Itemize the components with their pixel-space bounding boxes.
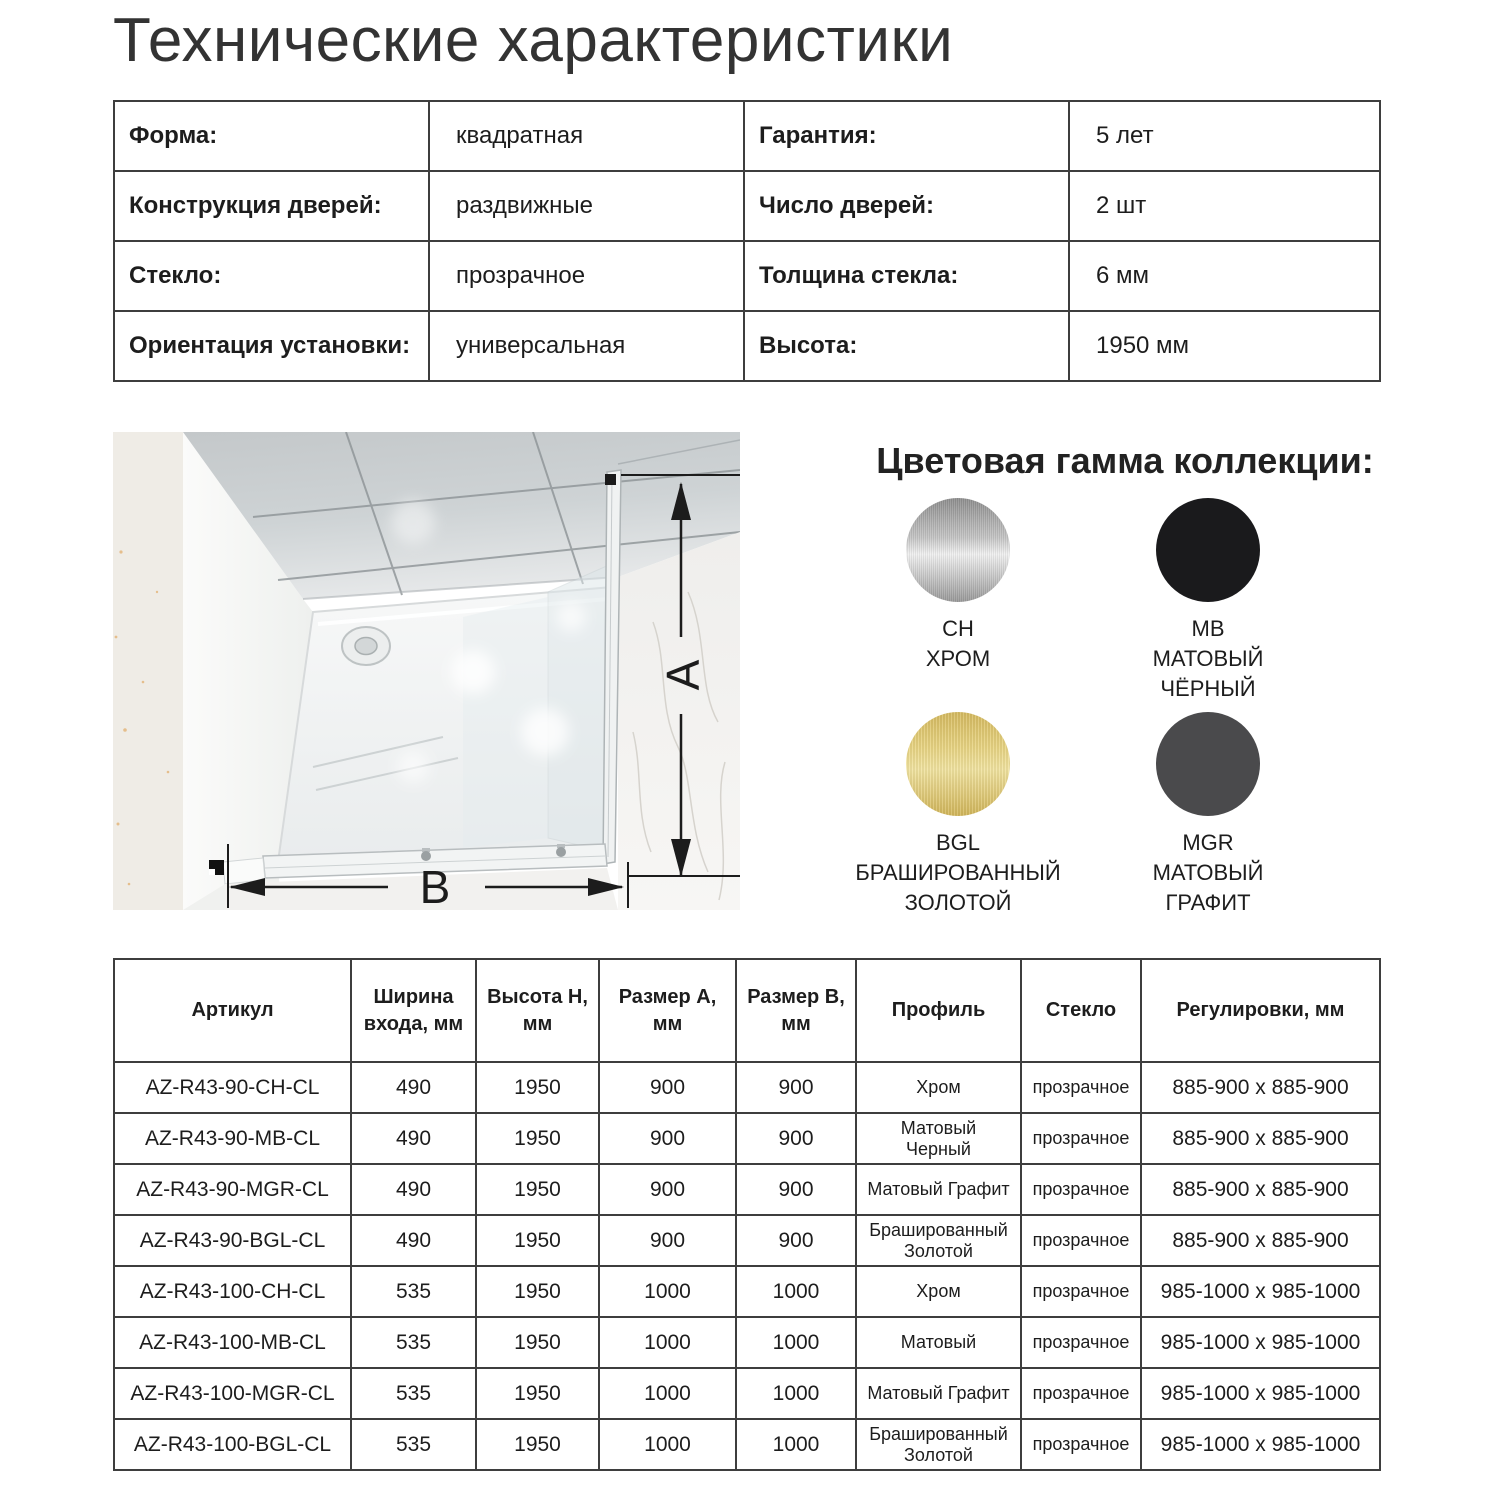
table-row: AZ-R43-90-BGL-CL 490 1950 900 900 Брашир… xyxy=(114,1215,1380,1266)
table-row: AZ-R43-90-CH-CL 490 1950 900 900 Хром пр… xyxy=(114,1062,1380,1113)
table-cell: 900 xyxy=(736,1113,856,1164)
table-cell: 490 xyxy=(351,1113,476,1164)
table-cell: AZ-R43-100-CH-CL xyxy=(114,1266,351,1317)
wall-bracket-top xyxy=(605,474,616,485)
table-cell: AZ-R43-90-CH-CL xyxy=(114,1062,351,1113)
page-title: Технические характеристики xyxy=(113,8,953,73)
spec-label: Форма: xyxy=(114,101,429,171)
table-cell: 535 xyxy=(351,1317,476,1368)
table-cell: 985-1000 x 985-1000 xyxy=(1141,1368,1380,1419)
table-cell: 1000 xyxy=(599,1266,736,1317)
swatch-chrome: CH ХРОМ xyxy=(906,498,1010,712)
table-cell: 1000 xyxy=(599,1368,736,1419)
table-cell: 1000 xyxy=(736,1317,856,1368)
table-cell: 900 xyxy=(736,1062,856,1113)
table-row: AZ-R43-100-MB-CL 535 1950 1000 1000 Мато… xyxy=(114,1317,1380,1368)
spec-label: Ориентация установки: xyxy=(114,311,429,381)
swatch-code: MGR xyxy=(1182,828,1233,858)
table-cell: 1000 xyxy=(599,1317,736,1368)
table-cell: 985-1000 x 985-1000 xyxy=(1141,1317,1380,1368)
spec-value: квадратная xyxy=(429,101,744,171)
table-cell: AZ-R43-100-BGL-CL xyxy=(114,1419,351,1470)
table-cell: AZ-R43-90-MB-CL xyxy=(114,1113,351,1164)
swatch-name: МАТОВЫЙ ЧЁРНЫЙ xyxy=(1153,644,1264,704)
table-cell: Матовый Черный xyxy=(856,1113,1021,1164)
table-cell: AZ-R43-100-MB-CL xyxy=(114,1317,351,1368)
table-row: AZ-R43-100-MGR-CL 535 1950 1000 1000 Мат… xyxy=(114,1368,1380,1419)
swatch-brushed-gold: BGL БРАШИРОВАННЫЙ ЗОЛОТОЙ xyxy=(855,712,1060,918)
table-cell: 885-900 x 885-900 xyxy=(1141,1062,1380,1113)
spec-value: раздвижные xyxy=(429,171,744,241)
table-cell: 1950 xyxy=(476,1164,599,1215)
left-outer-wall xyxy=(113,432,183,910)
column-header: Стекло xyxy=(1021,959,1141,1062)
table-cell: 535 xyxy=(351,1266,476,1317)
table-cell: 885-900 x 885-900 xyxy=(1141,1164,1380,1215)
spec-label: Стекло: xyxy=(114,241,429,311)
spec-label: Конструкция дверей: xyxy=(114,171,429,241)
spec-value: универсальная xyxy=(429,311,744,381)
table-cell: прозрачное xyxy=(1021,1317,1141,1368)
models-header-row: Артикул Ширина входа, мм Высота H, мм Ра… xyxy=(114,959,1380,1062)
color-gamma-heading: Цветовая гамма коллекции: xyxy=(845,440,1405,482)
table-cell: 1950 xyxy=(476,1317,599,1368)
table-cell: Брашированный Золотой xyxy=(856,1215,1021,1266)
table-cell: прозрачное xyxy=(1021,1266,1141,1317)
spec-value: 1950 мм xyxy=(1069,311,1380,381)
table-cell: 1950 xyxy=(476,1113,599,1164)
column-header: Артикул xyxy=(114,959,351,1062)
spec-label: Высота: xyxy=(744,311,1069,381)
swatch-code: MB xyxy=(1192,614,1225,644)
spec-row: Ориентация установки: универсальная Высо… xyxy=(114,311,1380,381)
spec-value: прозрачное xyxy=(429,241,744,311)
table-cell: 1950 xyxy=(476,1215,599,1266)
matte-black-swatch-icon xyxy=(1156,498,1260,602)
spec-row: Стекло: прозрачное Толщина стекла: 6 мм xyxy=(114,241,1380,311)
table-cell: AZ-R43-100-MGR-CL xyxy=(114,1368,351,1419)
table-cell: 490 xyxy=(351,1164,476,1215)
table-cell: 985-1000 x 985-1000 xyxy=(1141,1266,1380,1317)
color-gamma-grid: CH ХРОМ MB МАТОВЫЙ ЧЁРНЫЙ BGL БРАШИРОВАН… xyxy=(833,498,1333,918)
column-header: Размер B, мм xyxy=(736,959,856,1062)
table-cell: 1000 xyxy=(736,1266,856,1317)
spec-row: Конструкция дверей: раздвижные Число две… xyxy=(114,171,1380,241)
spec-sheet-page: Технические характеристики Форма: квадра… xyxy=(0,0,1500,1500)
table-cell: Матовый Графит xyxy=(856,1368,1021,1419)
table-cell: 1950 xyxy=(476,1368,599,1419)
swatch-name: МАТОВЫЙ ГРАФИТ xyxy=(1153,858,1264,918)
ceiling-light-glow xyxy=(391,500,435,544)
table-cell: прозрачное xyxy=(1021,1062,1141,1113)
swatch-code: CH xyxy=(942,614,974,644)
table-cell: прозрачное xyxy=(1021,1419,1141,1470)
table-cell: 535 xyxy=(351,1368,476,1419)
table-cell: 1950 xyxy=(476,1062,599,1113)
table-cell: Матовый xyxy=(856,1317,1021,1368)
table-cell: 1950 xyxy=(476,1266,599,1317)
table-cell: 885-900 x 885-900 xyxy=(1141,1215,1380,1266)
table-cell: 900 xyxy=(736,1164,856,1215)
column-header: Размер A, мм xyxy=(599,959,736,1062)
swatch-code: BGL xyxy=(936,828,980,858)
table-cell: 1950 xyxy=(476,1419,599,1470)
table-cell: 900 xyxy=(599,1062,736,1113)
spec-label: Толщина стекла: xyxy=(744,241,1069,311)
table-cell: AZ-R43-90-MGR-CL xyxy=(114,1164,351,1215)
table-cell: прозрачное xyxy=(1021,1368,1141,1419)
spec-value: 5 лет xyxy=(1069,101,1380,171)
spec-row: Форма: квадратная Гарантия: 5 лет xyxy=(114,101,1380,171)
table-cell: Матовый Графит xyxy=(856,1164,1021,1215)
table-cell: 900 xyxy=(736,1215,856,1266)
table-cell: Хром xyxy=(856,1266,1021,1317)
table-cell: AZ-R43-90-BGL-CL xyxy=(114,1215,351,1266)
swatch-matte-graphite: MGR МАТОВЫЙ ГРАФИТ xyxy=(1153,712,1264,918)
table-row: AZ-R43-90-MB-CL 490 1950 900 900 Матовый… xyxy=(114,1113,1380,1164)
spec-value: 6 мм xyxy=(1069,241,1380,311)
table-cell: 900 xyxy=(599,1113,736,1164)
table-cell: Брашированный Золотой xyxy=(856,1419,1021,1470)
spec-label: Число дверей: xyxy=(744,171,1069,241)
table-cell: 1000 xyxy=(736,1368,856,1419)
spec-value: 2 шт xyxy=(1069,171,1380,241)
table-cell: 885-900 x 885-900 xyxy=(1141,1113,1380,1164)
table-cell: 490 xyxy=(351,1062,476,1113)
chrome-swatch-icon xyxy=(906,498,1010,602)
dimension-label-a: A xyxy=(657,659,709,690)
spec-table: Форма: квадратная Гарантия: 5 лет Констр… xyxy=(113,100,1381,382)
dimension-label-b: B xyxy=(420,861,451,910)
table-cell: 535 xyxy=(351,1419,476,1470)
table-cell: Хром xyxy=(856,1062,1021,1113)
table-cell: прозрачное xyxy=(1021,1164,1141,1215)
models-table: Артикул Ширина входа, мм Высота H, мм Ра… xyxy=(113,958,1381,1471)
column-header: Высота H, мм xyxy=(476,959,599,1062)
drain-icon xyxy=(342,627,390,665)
column-header: Регулировки, мм xyxy=(1141,959,1380,1062)
table-cell: 900 xyxy=(599,1164,736,1215)
swatch-matte-black: MB МАТОВЫЙ ЧЁРНЫЙ xyxy=(1153,498,1264,712)
table-row: AZ-R43-100-CH-CL 535 1950 1000 1000 Хром… xyxy=(114,1266,1380,1317)
column-header: Профиль xyxy=(856,959,1021,1062)
wall-bracket-bottom xyxy=(209,860,224,875)
brushed-gold-swatch-icon xyxy=(906,712,1010,816)
spec-label: Гарантия: xyxy=(744,101,1069,171)
table-cell: 1000 xyxy=(736,1419,856,1470)
swatch-name: ХРОМ xyxy=(926,644,990,674)
table-row: AZ-R43-90-MGR-CL 490 1950 900 900 Матовы… xyxy=(114,1164,1380,1215)
table-cell: 1000 xyxy=(599,1419,736,1470)
table-cell: 490 xyxy=(351,1215,476,1266)
shower-top-view-diagram: A B xyxy=(113,432,740,910)
swatch-name: БРАШИРОВАННЫЙ ЗОЛОТОЙ xyxy=(855,858,1060,918)
column-header: Ширина входа, мм xyxy=(351,959,476,1062)
table-cell: прозрачное xyxy=(1021,1113,1141,1164)
table-cell: прозрачное xyxy=(1021,1215,1141,1266)
table-row: AZ-R43-100-BGL-CL 535 1950 1000 1000 Бра… xyxy=(114,1419,1380,1470)
table-cell: 900 xyxy=(599,1215,736,1266)
matte-graphite-swatch-icon xyxy=(1156,712,1260,816)
table-cell: 985-1000 x 985-1000 xyxy=(1141,1419,1380,1470)
